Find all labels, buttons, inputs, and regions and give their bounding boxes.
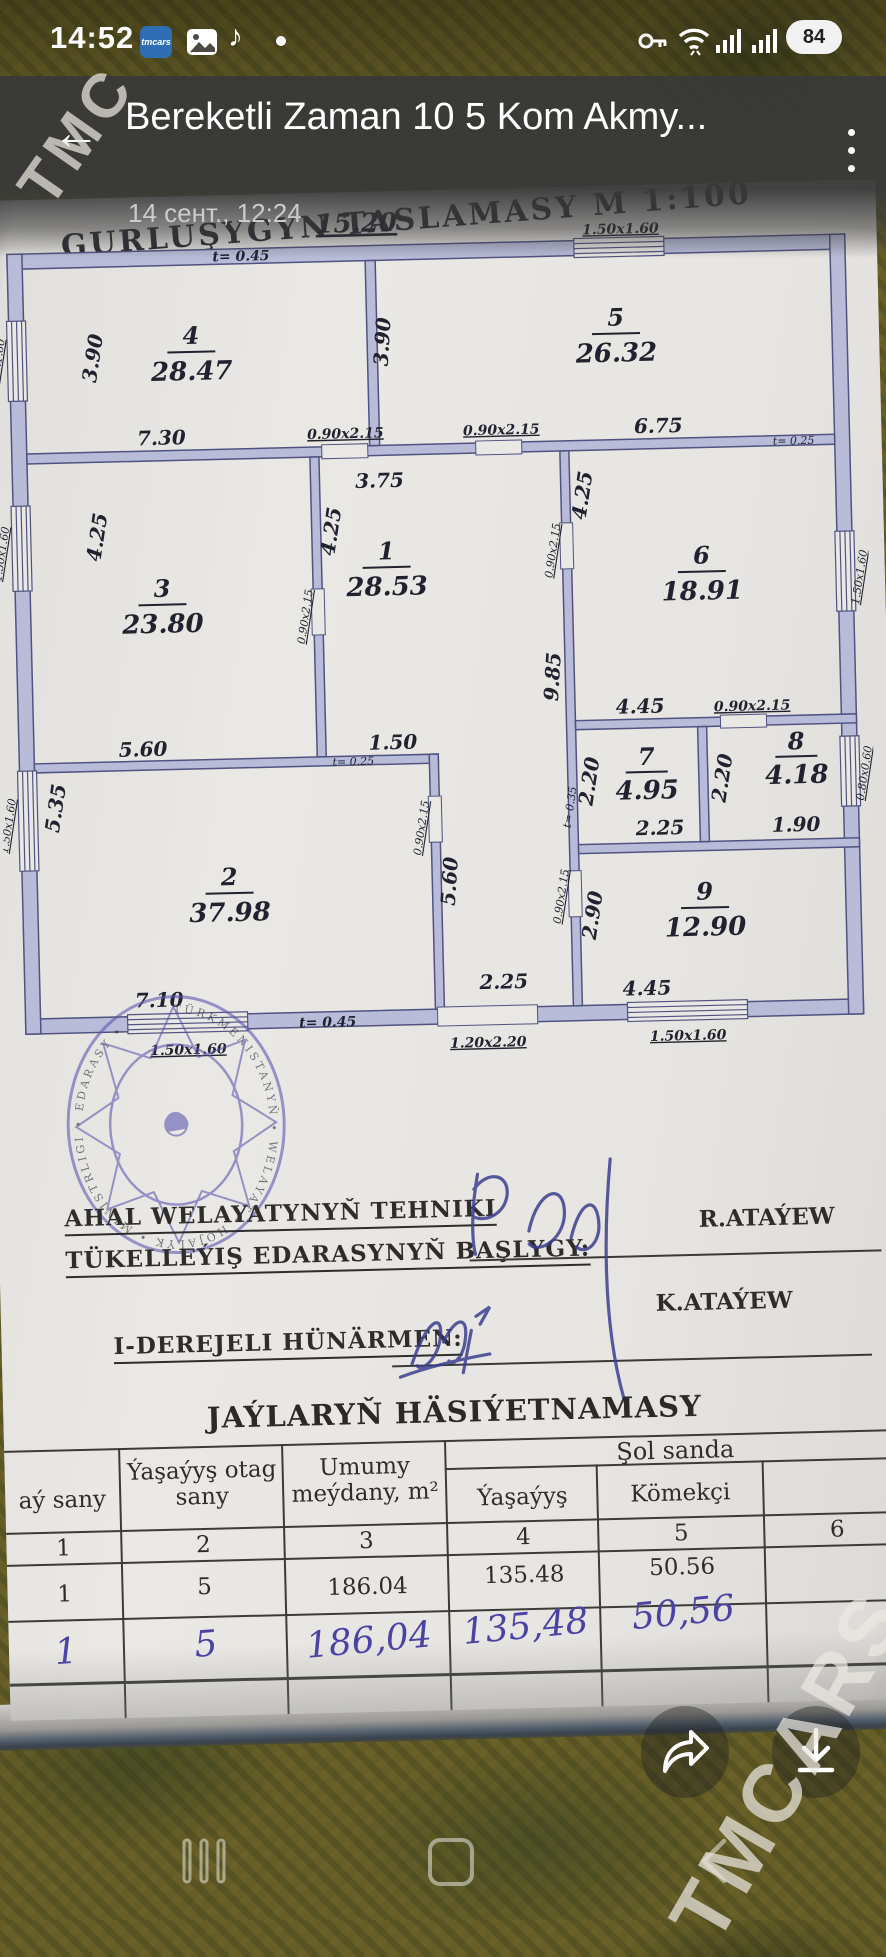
dim-t-a: t= 0.25 bbox=[773, 434, 815, 448]
room-4-number: 4 bbox=[182, 321, 199, 350]
nav-recents-button[interactable] bbox=[182, 1838, 230, 1884]
room-3-area: 23.80 bbox=[121, 609, 204, 641]
dim-room3-width: 5.60 bbox=[118, 737, 167, 762]
table-cell-handwritten: 1 bbox=[8, 1627, 125, 1677]
dim-doorA1: 0.90x2.15 bbox=[307, 425, 384, 443]
table-colnum: 3 bbox=[287, 1526, 446, 1556]
dim-window-left2: 1.50x1.60 bbox=[0, 526, 12, 583]
table-colnum: 2 bbox=[124, 1530, 283, 1560]
table-header-col5: Kömekçi bbox=[600, 1478, 761, 1508]
table-cell: 5 bbox=[125, 1572, 284, 1602]
room-8-number: 8 bbox=[786, 726, 805, 755]
share-button[interactable] bbox=[641, 1706, 729, 1798]
signal-icon-2 bbox=[752, 26, 782, 54]
dim-room7-height: 2.20 bbox=[573, 755, 604, 808]
dim-room8-height: 2.20 bbox=[706, 752, 737, 805]
dim-window-left3: 1.50x1.60 bbox=[0, 798, 19, 855]
table-border bbox=[762, 1460, 770, 1702]
table-colnum: 1 bbox=[6, 1534, 121, 1563]
room-4-area: 28.47 bbox=[150, 356, 233, 388]
table-cell: 50.56 bbox=[602, 1552, 763, 1582]
table-header-col3: Umumy meýdany, m² bbox=[285, 1452, 444, 1508]
clock: 14:52 bbox=[50, 20, 134, 56]
room-3-number: 3 bbox=[153, 574, 170, 603]
dim-bottom-door: 1.20x2.20 bbox=[450, 1034, 527, 1052]
dim-room1-top: 3.75 bbox=[355, 468, 404, 493]
table-cell-handwritten: 186,04 bbox=[288, 1613, 449, 1669]
page-title: Bereketli Zaman 10 5 Kom Akmy... bbox=[125, 96, 805, 139]
room-7-area: 4.95 bbox=[615, 775, 679, 807]
room-6-number: 6 bbox=[693, 540, 711, 569]
room-8-area: 4.18 bbox=[765, 760, 829, 792]
overflow-menu-button[interactable] bbox=[848, 118, 855, 183]
dim-t-b: t= 0.25 bbox=[332, 755, 374, 769]
dim-room7-width: 2.25 bbox=[634, 815, 684, 840]
table-cell: 135.48 bbox=[451, 1560, 598, 1590]
table-colnum: 6 bbox=[767, 1515, 886, 1544]
dim-room3-height: 4.25 bbox=[81, 511, 112, 563]
room-7-number: 7 bbox=[638, 742, 656, 771]
key-icon bbox=[638, 28, 668, 54]
dim-hall-150: 1.50 bbox=[368, 730, 417, 755]
table-cell bbox=[768, 1557, 886, 1560]
table-cell: 1 bbox=[7, 1580, 122, 1609]
dim-room5-width: 6.75 bbox=[634, 413, 683, 438]
dim-corridor-length: 9.85 bbox=[539, 652, 566, 702]
notification-dot-icon bbox=[276, 36, 286, 46]
wifi-icon bbox=[676, 24, 712, 56]
gallery-icon bbox=[186, 26, 218, 58]
table-header-col1: aý sany bbox=[5, 1486, 120, 1515]
dim-room4-height: 3.90 bbox=[77, 332, 108, 384]
photo-timestamp: 14 сент., 12:24 bbox=[128, 198, 302, 229]
dim-room4-width: 7.30 bbox=[137, 425, 186, 450]
share-icon bbox=[659, 1729, 711, 1775]
tmcars-app-icon: tmcars bbox=[140, 26, 172, 58]
dim-window-left1: 1.50x1.60 bbox=[0, 338, 8, 395]
battery-indicator: 84 bbox=[786, 20, 842, 54]
dim-room6-height: 4.25 bbox=[567, 469, 598, 521]
status-bar: 14:52 tmcars ♪ 84 bbox=[0, 0, 886, 76]
table-colnum: 5 bbox=[601, 1518, 762, 1548]
dim-room8-width: 1.90 bbox=[771, 812, 820, 837]
room-9-number: 9 bbox=[696, 876, 714, 905]
room-5-area: 26.32 bbox=[574, 338, 657, 370]
dim-room6-width: 4.45 bbox=[615, 694, 664, 719]
dim-bottom-window2: 1.50x1.60 bbox=[650, 1027, 727, 1045]
signal-icon bbox=[716, 26, 746, 54]
room-2-area: 37.98 bbox=[189, 897, 271, 929]
dim-door-room6: 0.90x2.15 bbox=[714, 697, 791, 715]
dim-room2-height: 5.35 bbox=[40, 782, 71, 834]
dim-divider45: 3.90 bbox=[369, 317, 396, 367]
room-5-number: 5 bbox=[607, 302, 624, 331]
table-header-span: Şol sanda bbox=[444, 1431, 886, 1470]
dim-room9-width: 4.45 bbox=[622, 975, 671, 1000]
tiktok-icon: ♪ bbox=[228, 20, 243, 54]
table-cell-handwritten: 5 bbox=[126, 1618, 287, 1671]
table-header-col4: Ýaşaýyş bbox=[449, 1482, 596, 1512]
room-1-area: 28.53 bbox=[345, 571, 428, 603]
dim-wall-bottom: t= 0.45 bbox=[299, 1014, 357, 1031]
room-6-area: 18.91 bbox=[661, 576, 743, 608]
table-border bbox=[10, 1662, 886, 1687]
table-cell-handwritten: 135,48 bbox=[451, 1599, 600, 1654]
room-2-number: 2 bbox=[219, 862, 237, 891]
signatures bbox=[377, 1139, 704, 1427]
room-9-area: 12.90 bbox=[664, 912, 746, 944]
table-header-col2: Ýaşaýyş otag sany bbox=[122, 1456, 281, 1512]
document-photo[interactable]: GURLUŞYGYN TASLAMASY M 1:100 bbox=[0, 179, 886, 1721]
dim-corridor-225: 2.25 bbox=[478, 969, 528, 994]
dim-doorA2: 0.90x2.15 bbox=[463, 421, 540, 439]
table-cell: 186.04 bbox=[288, 1572, 447, 1602]
table-cell-handwritten: 50,56 bbox=[602, 1585, 765, 1641]
table-colnum: 4 bbox=[450, 1522, 597, 1552]
nav-home-button[interactable] bbox=[428, 1838, 474, 1886]
floor-plan: 15.20 4 28.47 5 26.32 3 23.80 1 28.53 6 … bbox=[0, 186, 881, 1075]
room-1-number: 1 bbox=[378, 536, 395, 565]
official-name1: R.ATAÝEW bbox=[698, 1203, 835, 1233]
dim-corridor-560: 5.60 bbox=[436, 856, 463, 906]
